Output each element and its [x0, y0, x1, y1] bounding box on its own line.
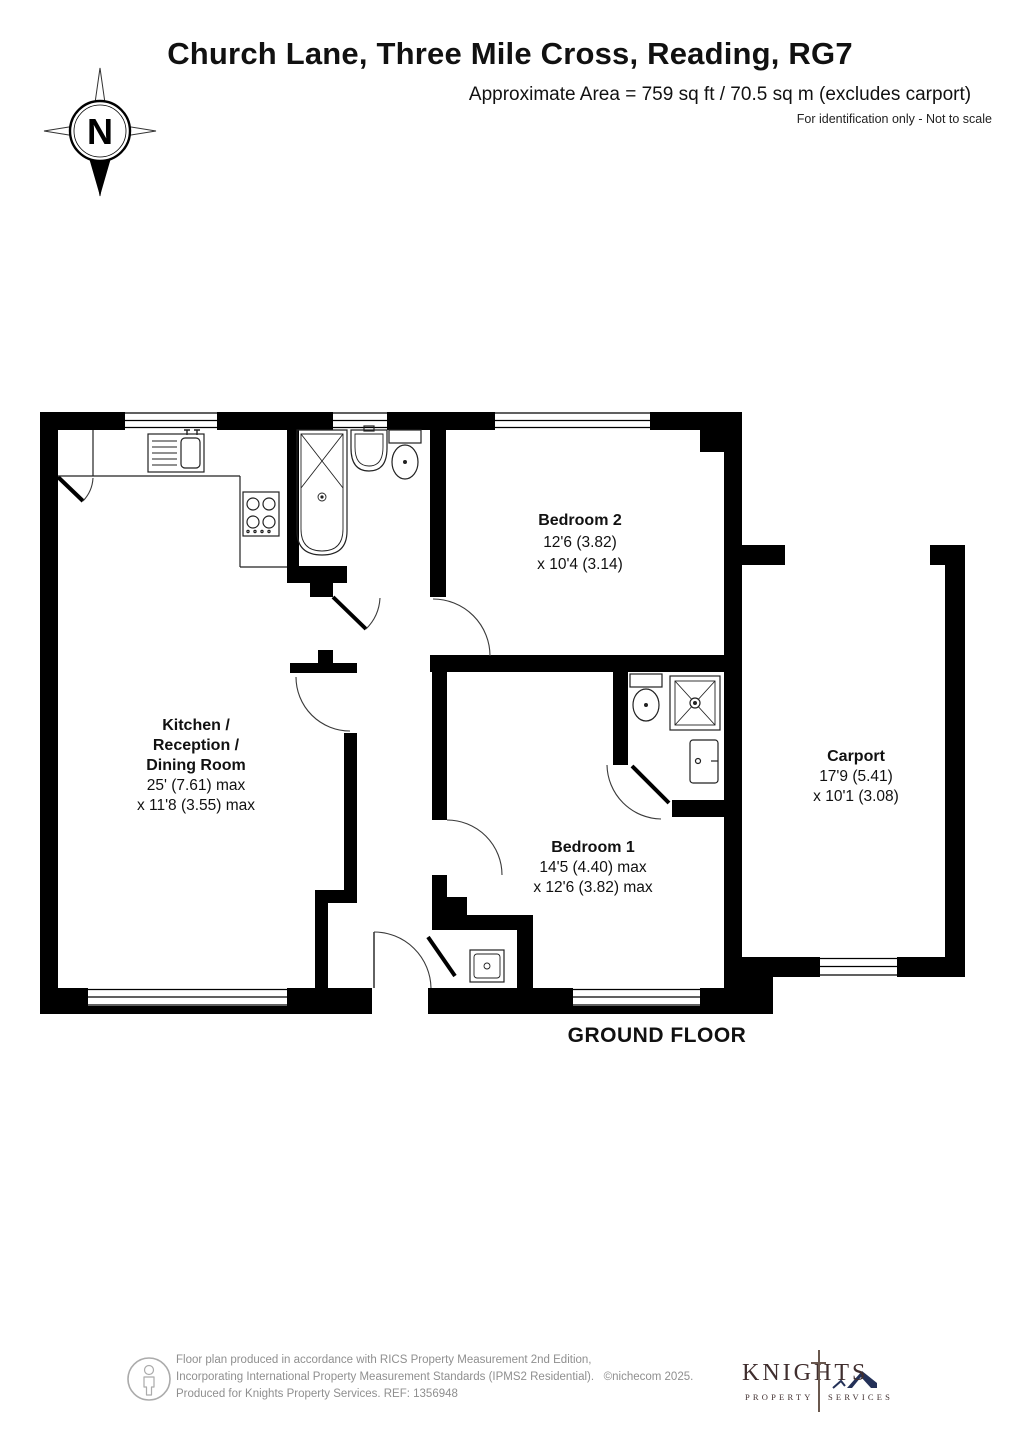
room-label-bedroom2: Bedroom 2 12'6 (3.82) x 10'4 (3.14) [537, 510, 623, 576]
compass-north-label: N [87, 111, 113, 152]
logo-subtext-services: SERVICES [828, 1392, 893, 1402]
room-dimensions: 12'6 (3.82) [537, 532, 623, 554]
room-dimensions: 17'9 (5.41) [813, 767, 899, 787]
room-dimensions: 25' (7.61) max [137, 776, 255, 796]
room-name: Bedroom 1 [533, 838, 652, 858]
kitchen-sink-icon [148, 430, 204, 472]
sword-icon [818, 1350, 820, 1412]
room-name: Dining Room [137, 756, 255, 776]
room-label-kitchen: Kitchen / Reception / Dining Room 25' (7… [137, 716, 255, 816]
room-name: Bedroom 2 [537, 510, 623, 532]
ensuite-toilet-icon [630, 674, 662, 721]
room-dimensions: x 11'8 (3.55) max [137, 796, 255, 816]
walls [40, 412, 965, 1014]
bathroom-toilet-icon [389, 430, 421, 479]
footer-line-3: Produced for Knights Property Services. … [176, 1386, 736, 1403]
compass-rose-icon: N [44, 68, 156, 196]
room-dimensions: x 12'6 (3.82) max [533, 878, 652, 898]
room-dimensions: x 10'4 (3.14) [537, 554, 623, 576]
copyright: ©nichecom 2025. [604, 1371, 694, 1383]
room-label-bedroom1: Bedroom 1 14'5 (4.40) max x 12'6 (3.82) … [533, 838, 652, 898]
knights-logo-wordmark: KNIGHTS [742, 1360, 892, 1387]
hob-icon [243, 492, 279, 536]
room-dimensions: x 10'1 (3.08) [813, 787, 899, 807]
room-dimensions: 14'5 (4.40) max [533, 858, 652, 878]
footer-line-2: Incorporating International Property Mea… [176, 1369, 736, 1386]
bathroom-basin-icon [351, 426, 387, 471]
ensuite-cupboard-icon [690, 740, 718, 783]
room-label-carport: Carport 17'9 (5.41) x 10'1 (3.08) [813, 747, 899, 807]
footer-line-1: Floor plan produced in accordance with R… [176, 1352, 736, 1369]
room-name: Carport [813, 747, 899, 767]
sword-crossguard-icon [811, 1362, 826, 1364]
logo-subtext-property: PROPERTY [745, 1392, 814, 1402]
floorplan-page: { "header": { "title": "Church Lane, Thr… [0, 0, 1020, 1441]
person-icon [128, 1358, 170, 1400]
footer-disclaimer: Floor plan produced in accordance with R… [176, 1352, 736, 1403]
wc-basin-icon [470, 950, 504, 982]
room-name: Kitchen / [137, 716, 255, 736]
shower-icon [670, 676, 720, 730]
room-name: Reception / [137, 736, 255, 756]
bathtub-icon [297, 430, 347, 555]
floor-title: GROUND FLOOR [568, 1024, 747, 1048]
